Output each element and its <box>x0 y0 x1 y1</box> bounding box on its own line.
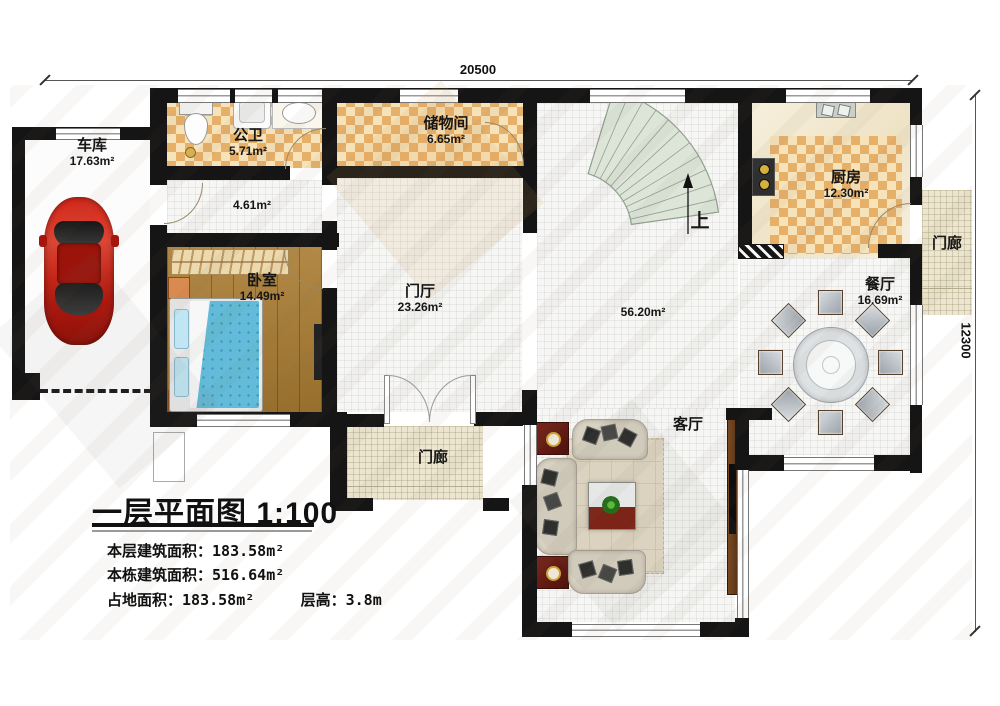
washer-drum <box>239 101 265 123</box>
label-storage: 储物间 6.65m² <box>423 116 468 146</box>
sofa-pillow <box>601 424 619 442</box>
wall-living-right-b <box>735 618 749 637</box>
wall-living-bottom-a <box>522 622 572 637</box>
sink-basin-1 <box>821 104 835 117</box>
floor-plan-canvas: 车库 17.63m² 公卫 5.71m² 储物间 6.65m² 4.61m² 卧… <box>0 0 1000 706</box>
dining-chair <box>818 290 843 315</box>
wall-porch-stub-left <box>335 498 373 511</box>
burner-1 <box>759 164 770 175</box>
porch-right-step-line <box>922 288 972 289</box>
dim-line-right <box>975 95 976 632</box>
window <box>572 624 700 637</box>
end-table-2 <box>536 556 569 589</box>
label-kitchen: 厨房 12.30m² <box>824 170 869 200</box>
label-garage: 车库 17.63m² <box>70 138 115 168</box>
wall-right-3 <box>910 247 922 305</box>
car-mirror-left <box>39 235 47 247</box>
window <box>524 425 537 485</box>
sofa-pillow <box>617 559 634 576</box>
wall-bath-bottom <box>150 166 290 180</box>
window <box>910 125 923 177</box>
dim-line-top <box>45 80 913 81</box>
bed-pillow-2 <box>174 357 189 397</box>
label-corridor: 4.61m² <box>233 199 271 212</box>
label-porch-right: 门廊 <box>932 236 962 253</box>
wall-living-left-a <box>522 390 537 425</box>
window <box>178 89 230 103</box>
car-mirror-right <box>111 235 119 247</box>
dim-right-value: 12300 <box>959 313 974 369</box>
wall-bedroom-top <box>150 233 339 247</box>
porch-bottom-floor <box>347 426 483 500</box>
wall-left-lower <box>150 225 167 427</box>
spiral-stairs <box>570 88 750 238</box>
garage-door-dashed <box>40 389 152 393</box>
bed-pillow-1 <box>174 309 189 349</box>
bedroom-tv <box>314 324 322 380</box>
dining-chair <box>818 410 843 435</box>
wall-garage-left <box>12 127 25 393</box>
label-bathroom: 公卫 5.71m² <box>229 128 267 158</box>
title-underline-thick <box>92 523 314 527</box>
window <box>400 89 458 103</box>
dim-top-value: 20500 <box>438 62 518 77</box>
wall-kitchen-left <box>738 88 752 244</box>
window <box>197 414 290 427</box>
wall-storage-bottom <box>322 166 537 178</box>
nightstand-1 <box>168 277 190 299</box>
window <box>786 89 870 103</box>
wall-foyer-bottom-right <box>474 412 523 426</box>
kitchen-sink <box>816 101 856 118</box>
car <box>44 197 114 345</box>
bath-sink <box>282 102 316 124</box>
wall-living-left-b <box>522 485 537 637</box>
car-cabin <box>57 243 101 285</box>
wall-right-1 <box>910 88 922 125</box>
label-bedroom: 卧室 14.49m² <box>240 273 285 303</box>
dining-chair <box>878 350 903 375</box>
car-rear-window <box>55 283 103 315</box>
label-stairs-up: 上 <box>690 212 709 233</box>
window <box>590 89 685 103</box>
stove <box>752 158 775 196</box>
stat-building-area: 本栋建筑面积：516.64m² <box>107 564 284 585</box>
bed <box>169 298 263 412</box>
window <box>784 457 874 471</box>
window <box>910 305 923 405</box>
sofa-pillow <box>542 519 559 536</box>
wall-dining-bottom-b <box>874 455 922 471</box>
porch-bottom-step-line <box>347 486 483 487</box>
title-underline-thin <box>92 530 312 532</box>
wall-porch-stub-right <box>483 498 509 511</box>
coffee-table-plant <box>602 496 620 514</box>
wall-garage-corner <box>12 373 40 400</box>
wall-storage-right <box>523 88 537 233</box>
window <box>278 89 322 103</box>
dining-chair <box>758 350 783 375</box>
stat-floor-area: 本层建筑面积：183.58m² <box>107 540 284 561</box>
dining-table-center <box>822 356 840 374</box>
label-living: 客厅 <box>673 417 703 434</box>
wall-right-2 <box>910 177 922 205</box>
window <box>737 470 749 618</box>
porch-right-floor <box>922 190 972 315</box>
wall-bedroom-right <box>322 288 337 415</box>
label-dining: 餐厅 16.69m² <box>858 277 903 307</box>
label-porch-bottom: 门廊 <box>418 450 448 467</box>
wall-living-top-stub <box>726 408 772 420</box>
label-hall: 56.20m² <box>621 306 666 319</box>
living-tv <box>729 464 736 534</box>
end-table-1 <box>536 422 569 455</box>
bath-drain <box>185 147 196 158</box>
stat-footprint-and-height: 占地面积：183.58m² 层高：3.8m <box>107 589 382 610</box>
sink-basin-2 <box>837 104 851 117</box>
label-foyer: 门厅 23.26m² <box>398 284 443 314</box>
window <box>235 89 272 103</box>
burner-2 <box>759 179 770 190</box>
wall-foyer-bottom-left <box>347 414 384 427</box>
pillar <box>153 432 185 482</box>
wall-kitchen-hatched <box>738 244 784 259</box>
